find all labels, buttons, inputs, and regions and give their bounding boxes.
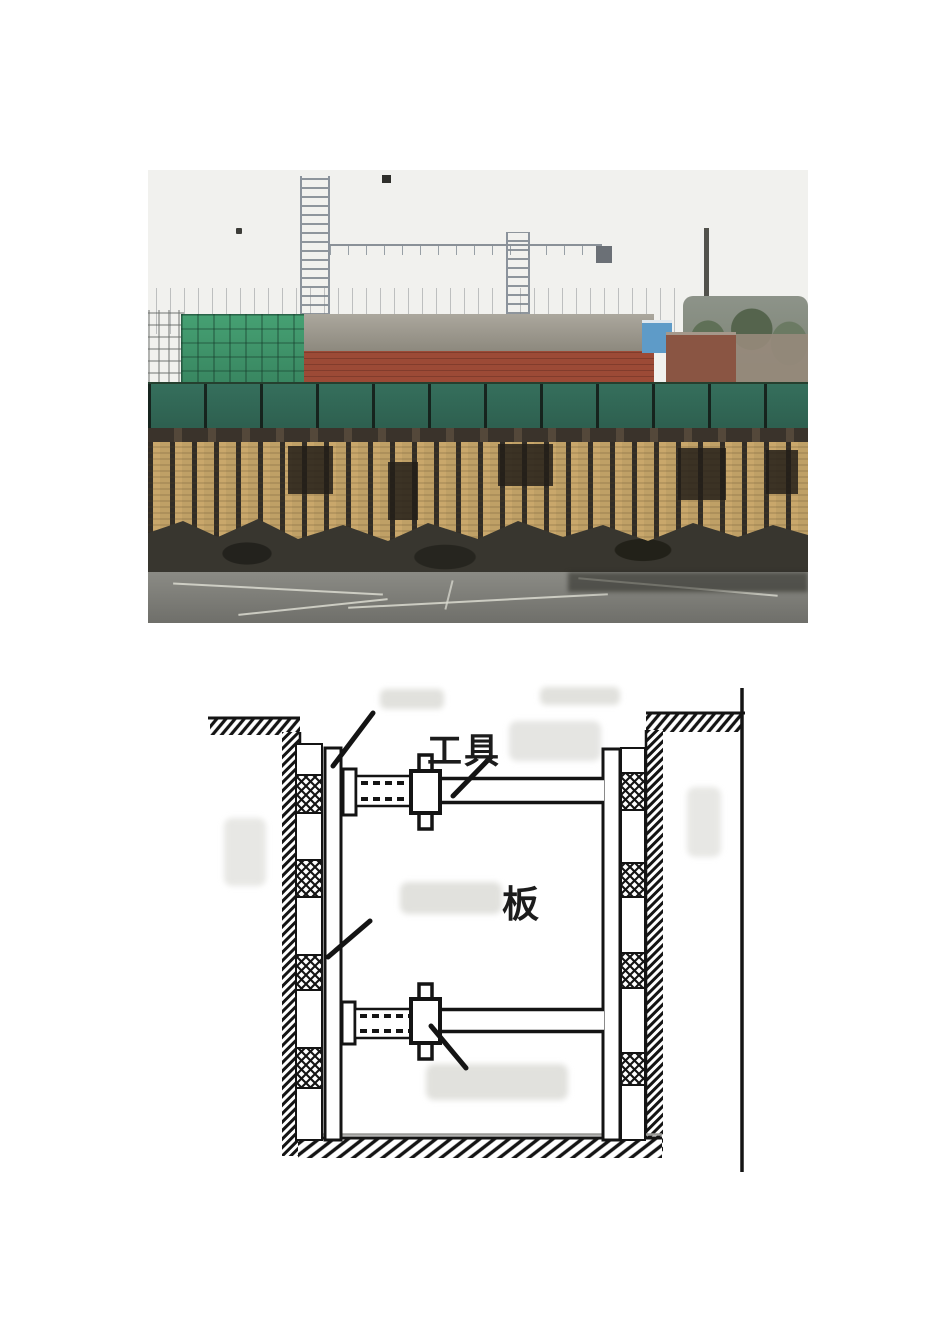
strut-end-plate [343, 769, 356, 815]
document-page: 工具 板 [0, 0, 950, 1318]
plank-gap [388, 462, 418, 520]
plank-gap [288, 446, 333, 494]
jack-handle-stub [419, 1043, 432, 1059]
jack-handle-stub [419, 984, 432, 999]
soil-wall-right [646, 730, 663, 1152]
leader-to-left-board [333, 713, 373, 766]
strut-end-plate [342, 1002, 355, 1044]
ground-crack [348, 593, 608, 609]
vertical-board-right [603, 749, 620, 1140]
screw-jack-body [411, 999, 440, 1043]
wale-blocks-left [296, 744, 322, 1140]
building-roof [304, 314, 654, 353]
sky-speck [382, 175, 391, 183]
construction-site-photo [148, 170, 808, 623]
ground-crack [173, 583, 383, 596]
label-board: 板 [502, 883, 539, 926]
crane-jib [330, 244, 602, 255]
crane-counter-jib [596, 246, 612, 263]
plank-gap [498, 444, 553, 486]
scaffold-left [148, 310, 184, 386]
screw-jack-body [411, 771, 440, 813]
far-wall [736, 334, 808, 388]
plank-gap [678, 448, 726, 500]
green-safety-fence [148, 382, 808, 432]
wet-soil-patch [568, 572, 808, 592]
label-tool: 工具 [427, 732, 501, 772]
jack-handle-stub [419, 813, 432, 829]
ground-crack [444, 580, 453, 610]
wale-blocks-right [621, 748, 645, 1140]
shoring-cross-section-diagram: 工具 板 [180, 660, 770, 1190]
brick-building [304, 314, 654, 389]
ground-surface-right [646, 713, 745, 732]
lower-strut [342, 984, 604, 1059]
sky-speck [236, 228, 242, 234]
vertical-board-left [325, 748, 341, 1140]
plank-gap [766, 450, 798, 494]
screw-rod [355, 1009, 412, 1038]
screw-rod [356, 776, 412, 806]
excavation-floor [148, 572, 808, 623]
